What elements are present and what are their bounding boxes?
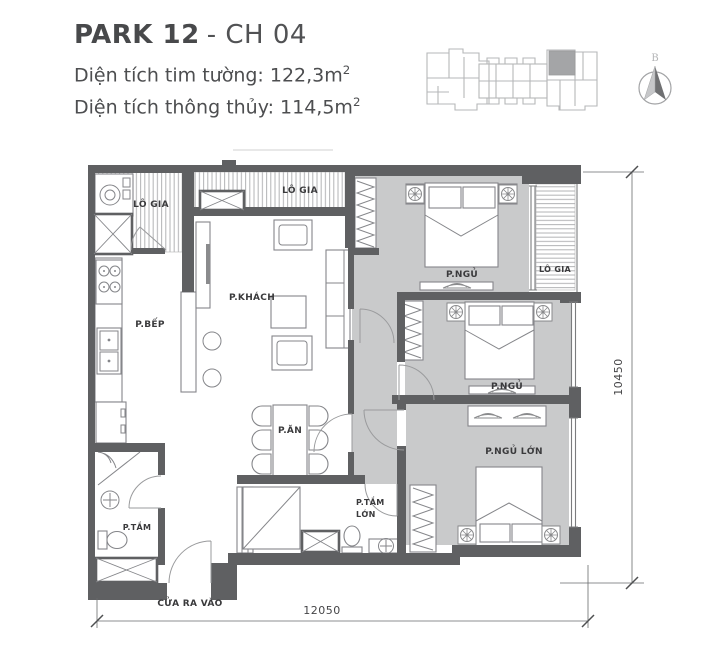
plant-icon — [458, 526, 476, 544]
label-living: P.KHÁCH — [229, 291, 275, 303]
washing-machine — [95, 174, 133, 216]
master-bedroom-window — [569, 418, 578, 527]
shower-screen — [98, 452, 140, 485]
keyplan-highlighted-unit — [549, 51, 575, 75]
title-unit-code-bold: PARK 12 — [74, 20, 200, 50]
bar-stool — [203, 332, 221, 350]
armchair-bottom — [272, 336, 312, 370]
toilet-bowl — [344, 526, 360, 546]
pillow — [502, 306, 533, 325]
master-wardrobe — [410, 485, 436, 552]
header: PARK 12- CH 04 Diện tích tim tường: 122,… — [74, 20, 360, 122]
bedroom2-wardrobe — [402, 301, 423, 360]
compass-needle-light — [644, 66, 655, 100]
pillow — [429, 187, 461, 208]
area-gross-sup: 2 — [343, 63, 351, 77]
dining-chair — [309, 406, 328, 426]
bath-door-opening — [377, 475, 397, 484]
label-bathroom: P.TẮM — [123, 520, 152, 532]
entrance-door — [169, 541, 211, 583]
plant-icon — [447, 303, 465, 321]
label-kitchen: P.BẾP — [135, 317, 165, 330]
floorplan-page: PARK 12- CH 04 Diện tích tim tường: 122,… — [0, 0, 719, 660]
dining-table — [273, 405, 307, 477]
compass-north-label: B — [651, 53, 658, 64]
plant-icon — [406, 185, 424, 203]
dining-chair — [252, 454, 271, 474]
toilet-tank — [98, 531, 107, 549]
coffee-table — [271, 296, 306, 328]
corridor-floor — [352, 255, 397, 484]
area-line-gross: Diện tích tim tường: 122,3m2 — [74, 57, 360, 89]
title-unit-code-rest: - CH 04 — [207, 20, 307, 50]
compass-needle-dark — [655, 66, 666, 100]
pillow — [463, 187, 495, 208]
area-net-text: Diện tích thông thủy: 114,5m — [74, 97, 353, 119]
dining-chair — [252, 406, 271, 426]
plant-icon — [534, 303, 552, 321]
toilet-bowl — [107, 532, 127, 549]
page-title: PARK 12- CH 04 — [74, 20, 360, 50]
kitchen-sink — [97, 328, 121, 374]
toilet-tank — [342, 547, 362, 553]
bar-stool — [203, 369, 221, 387]
bathroom-fixtures — [98, 452, 140, 549]
tv — [206, 244, 210, 284]
dining-table-set — [252, 405, 328, 477]
bathroom-door — [129, 476, 161, 508]
pillow — [512, 524, 542, 542]
area-line-net: Diện tích thông thủy: 114,5m2 — [74, 89, 360, 121]
plant-icon — [542, 526, 560, 544]
label-dining: P.ĂN — [278, 424, 302, 436]
label-lo-gia-right: LÔ GIA — [539, 263, 571, 274]
armchair-top — [274, 220, 312, 250]
compass: B — [639, 53, 671, 104]
label-lo-gia-center: LÔ GIA — [282, 184, 318, 196]
dimension-bottom: 12050 — [303, 604, 341, 617]
label-master-bathroom-2: LỚN — [356, 508, 376, 519]
dining-chair — [309, 454, 328, 474]
kitchen-island — [181, 292, 196, 392]
balcony-right-hatch — [536, 184, 575, 290]
keyplan-building-overview — [427, 49, 597, 110]
dining-chair — [252, 430, 271, 450]
pillow — [469, 306, 500, 325]
label-lo-gia-left: LÔ GIA — [133, 198, 169, 210]
kitchen-counter — [95, 258, 126, 443]
plant-icon — [499, 185, 517, 203]
pillow — [480, 524, 510, 542]
label-master-bathroom-1: P.TẮM — [356, 495, 385, 507]
dimension-right: 10450 — [612, 358, 625, 396]
tv-console — [196, 222, 210, 308]
sofa — [326, 250, 350, 348]
area-gross-text: Diện tích tim tường: 122,3m — [74, 64, 343, 86]
bedroom1-wardrobe — [355, 178, 376, 248]
fridge — [96, 402, 126, 443]
area-net-sup: 2 — [353, 95, 361, 109]
